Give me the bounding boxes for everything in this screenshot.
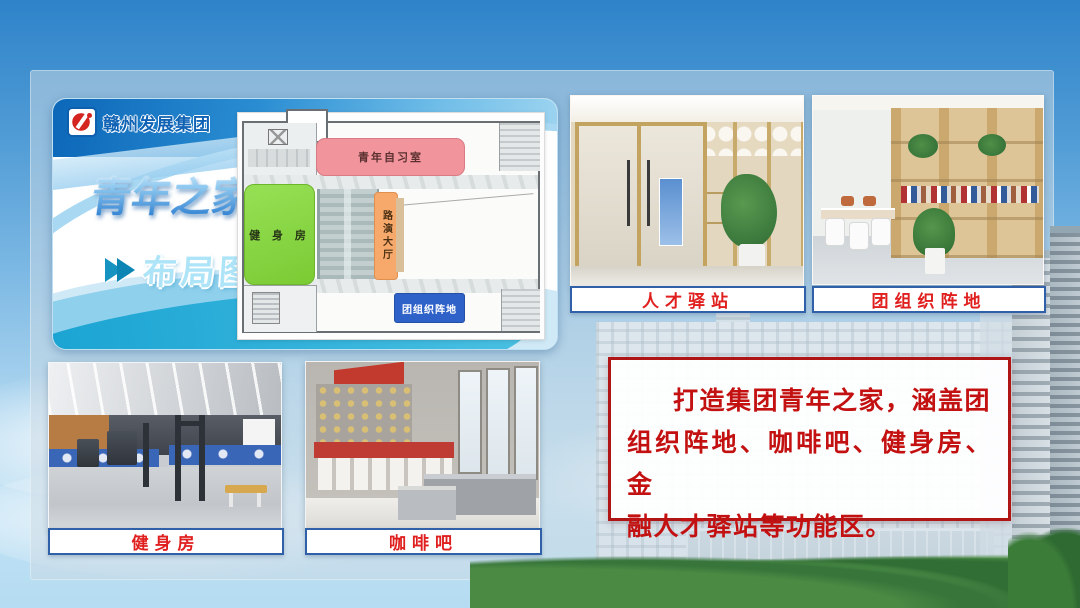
room-study-hall: 青年自习室: [316, 138, 465, 176]
plan-utility-topleft: [244, 123, 317, 176]
photo-coffee-bar: [305, 361, 540, 529]
photo-books: [901, 186, 1039, 203]
photo-league-base: [812, 95, 1044, 285]
photo-poster: [659, 178, 683, 246]
plan-stairs-bottomright: [501, 289, 540, 331]
caption-league-base: 团组织阵地: [812, 286, 1046, 313]
title-card: 赣州发展集团 青年之家 布局图 青年自: [52, 98, 558, 350]
double-chevron-icon: [105, 258, 129, 282]
photo-gym-rack: [175, 421, 205, 426]
photo-shape: [925, 248, 945, 274]
company-logo: 赣州发展集团: [67, 107, 211, 137]
photo-shape: [571, 266, 803, 286]
photo-bench: [225, 485, 267, 493]
plan-utility-bottomleft: [244, 285, 317, 332]
photo-shape: [627, 160, 630, 226]
plan-stairs: [252, 292, 280, 324]
photo-gym-machine: [77, 439, 99, 467]
photo-talent-station: [570, 95, 804, 287]
room-gym: 健 身 房: [244, 184, 315, 285]
plan-elevator: [268, 129, 288, 145]
plan-restrooms: [248, 149, 310, 167]
photo-chair: [825, 218, 845, 246]
trees-bottom-right: [1008, 528, 1080, 608]
caption-gym: 健身房: [48, 528, 284, 555]
photo-shape: [49, 467, 281, 529]
photo-shape: [49, 363, 281, 417]
plan-auditorium-seating: [317, 189, 379, 279]
caption-coffee-bar: 咖啡吧: [305, 528, 542, 555]
description-line: 融人才驿站等功能区。: [627, 506, 992, 548]
photo-chair: [841, 196, 854, 206]
section-heading: 布局图: [105, 245, 257, 294]
photo-counter: [398, 486, 456, 520]
photo-window: [458, 370, 482, 474]
photo-chair: [849, 222, 869, 250]
photo-gym-rack: [175, 415, 181, 501]
photo-chair: [863, 196, 876, 206]
photo-window: [486, 368, 510, 478]
photo-glass-doors: [575, 122, 707, 276]
photo-window: [514, 366, 538, 480]
photo-gym-rack: [199, 415, 205, 501]
photo-gym-rack: [143, 423, 149, 487]
photo-plant: [721, 174, 777, 248]
plan-stage-strip: [396, 198, 404, 272]
trees-bottom: [470, 552, 1060, 608]
caption-talent-station: 人才驿站: [570, 286, 806, 313]
photo-whiteboard: [243, 419, 275, 445]
photo-chair: [871, 218, 891, 246]
photo-shape: [257, 493, 261, 507]
photo-character-wall: [316, 384, 412, 444]
photo-plant: [978, 134, 1006, 156]
photo-gym-machine: [107, 431, 137, 465]
photo-plant: [908, 134, 938, 158]
description-line: 组织阵地、咖啡吧、健身房、金: [627, 422, 992, 506]
description-box: 打造集团青年之家，涵盖团 组织阵地、咖啡吧、健身房、金 融人才驿站等功能区。: [608, 357, 1011, 521]
presentation-slide: 赣州发展集团 青年之家 布局图 青年自: [0, 0, 1080, 608]
photo-red-beam: [314, 442, 454, 458]
description-text: 打造集团青年之家，涵盖团 组织阵地、咖啡吧、健身房、金 融人才驿站等功能区。: [611, 360, 1008, 548]
plan-stairs-topright: [499, 123, 540, 171]
company-name: 赣州发展集团: [103, 110, 211, 135]
chevron-right-icon: [117, 258, 135, 282]
photo-shape: [647, 160, 650, 226]
description-line: 打造集团青年之家，涵盖团: [627, 380, 992, 422]
photo-banner: [169, 445, 281, 465]
photo-gym: [48, 362, 282, 530]
room-league-base: 团组织阵地: [394, 293, 465, 323]
company-logo-icon: [67, 107, 97, 137]
photo-shape: [571, 96, 803, 122]
photo-shape: [637, 126, 641, 272]
floor-plan: 青年自习室 健 身 房 路演大厅 团组织阵地: [237, 112, 545, 340]
plan-aisle: [344, 189, 351, 279]
logo-red-dot: [87, 113, 92, 118]
photo-shape: [229, 493, 233, 507]
room-roadshow-hall: 路演大厅: [374, 192, 398, 280]
